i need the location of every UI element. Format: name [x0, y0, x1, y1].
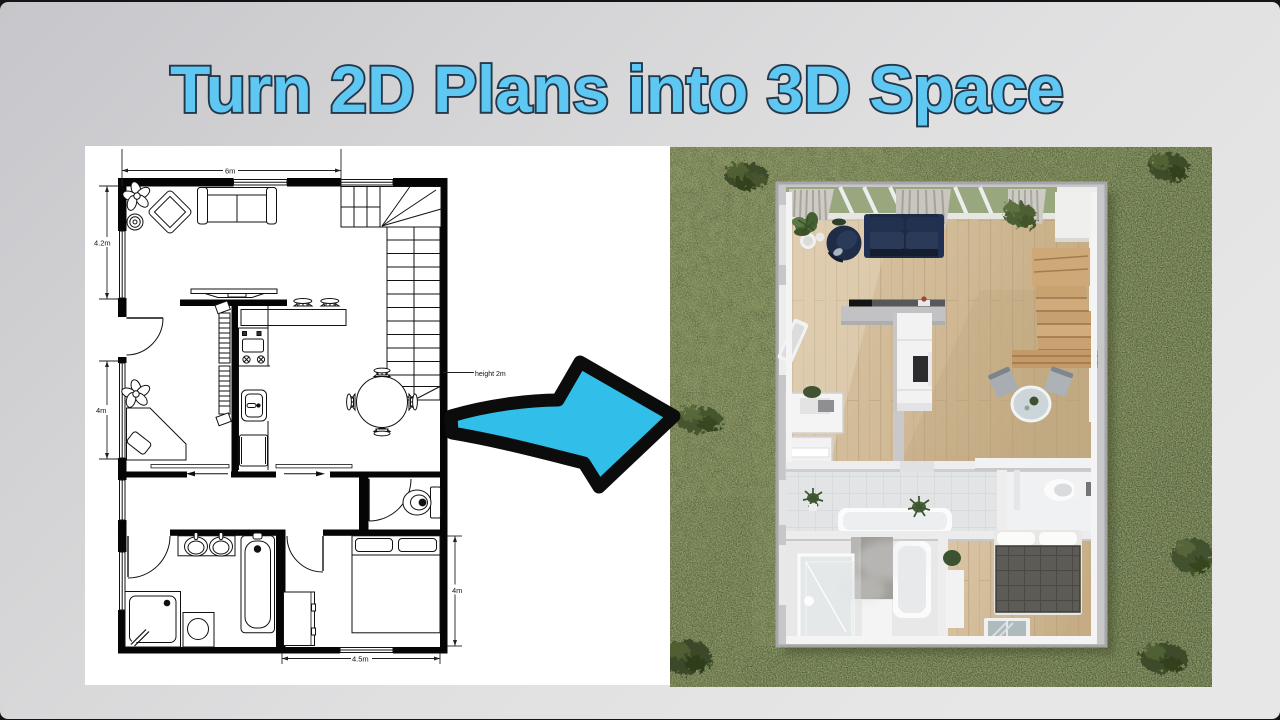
svg-text:4m: 4m [452, 586, 462, 595]
svg-text:4.5m: 4.5m [352, 655, 369, 664]
svg-text:height 2m: height 2m [475, 371, 506, 378]
svg-text:4.2m: 4.2m [94, 239, 111, 248]
svg-text:Turn 2D Plans into 3D Space: Turn 2D Plans into 3D Space [170, 52, 1064, 126]
svg-text:4m: 4m [96, 406, 106, 415]
svg-text:6m: 6m [225, 167, 235, 176]
